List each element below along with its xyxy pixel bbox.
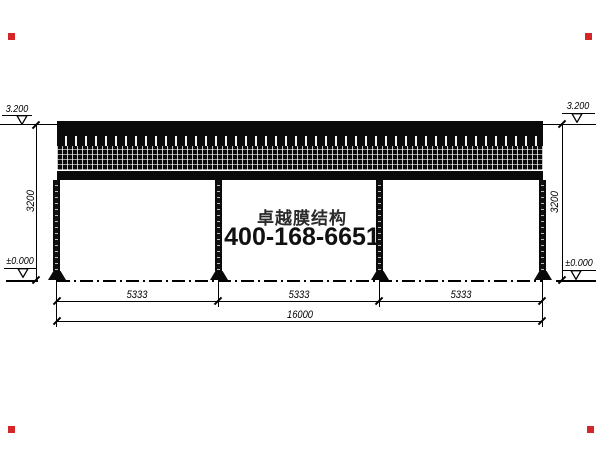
- column-base-4: [534, 271, 552, 280]
- level-marker-icon: [17, 268, 29, 278]
- span-dimension-label-2: 5333: [274, 289, 325, 301]
- total-dimension-label: 16000: [275, 309, 326, 321]
- level-marker-icon: [571, 113, 583, 123]
- span-dimension-label-1: 5333: [112, 289, 163, 301]
- corner-marker-top-right: [585, 33, 592, 40]
- column-4: [539, 180, 546, 271]
- phone-number-text: 400-168-6651: [220, 223, 384, 252]
- elevation-drawing: 3200 3200 3.200 3.200 ±0.000 ±0.000 5333…: [0, 0, 600, 450]
- roof-level-line-left: [0, 124, 57, 125]
- corner-marker-bottom-left: [8, 426, 15, 433]
- level-marker-icon: [16, 115, 28, 125]
- truss-top-chord: [57, 121, 543, 136]
- corner-marker-bottom-right: [587, 426, 594, 433]
- extension-line: [218, 280, 219, 307]
- roof-level-line-right: [543, 124, 596, 125]
- roof-truss: [57, 121, 543, 180]
- ground-level-label-right: ±0.000: [563, 258, 595, 269]
- height-dimension-label-right: 3200: [549, 184, 561, 220]
- corner-marker-top-left: [8, 33, 15, 40]
- ground-level-label-left: ±0.000: [4, 256, 36, 267]
- column-base-3: [371, 271, 389, 280]
- span-dimension-label-3: 5333: [436, 289, 487, 301]
- truss-vertical-posts: [57, 136, 543, 146]
- total-dimension-line: [57, 321, 543, 322]
- height-dimension-label-left: 3200: [25, 183, 37, 219]
- span-dimension-line: [57, 301, 543, 302]
- truss-bottom-chord: [57, 171, 543, 180]
- level-marker-icon: [570, 270, 582, 280]
- column-base-1: [48, 271, 66, 280]
- roof-level-label-right: 3.200: [562, 101, 594, 112]
- column-base-2: [210, 271, 228, 280]
- column-1: [53, 180, 60, 271]
- ground-line: [57, 280, 543, 282]
- roof-level-label-left: 3.200: [2, 104, 33, 115]
- dim-tick: [32, 276, 40, 284]
- extension-line: [379, 280, 380, 307]
- truss-lattice-web: [57, 146, 543, 170]
